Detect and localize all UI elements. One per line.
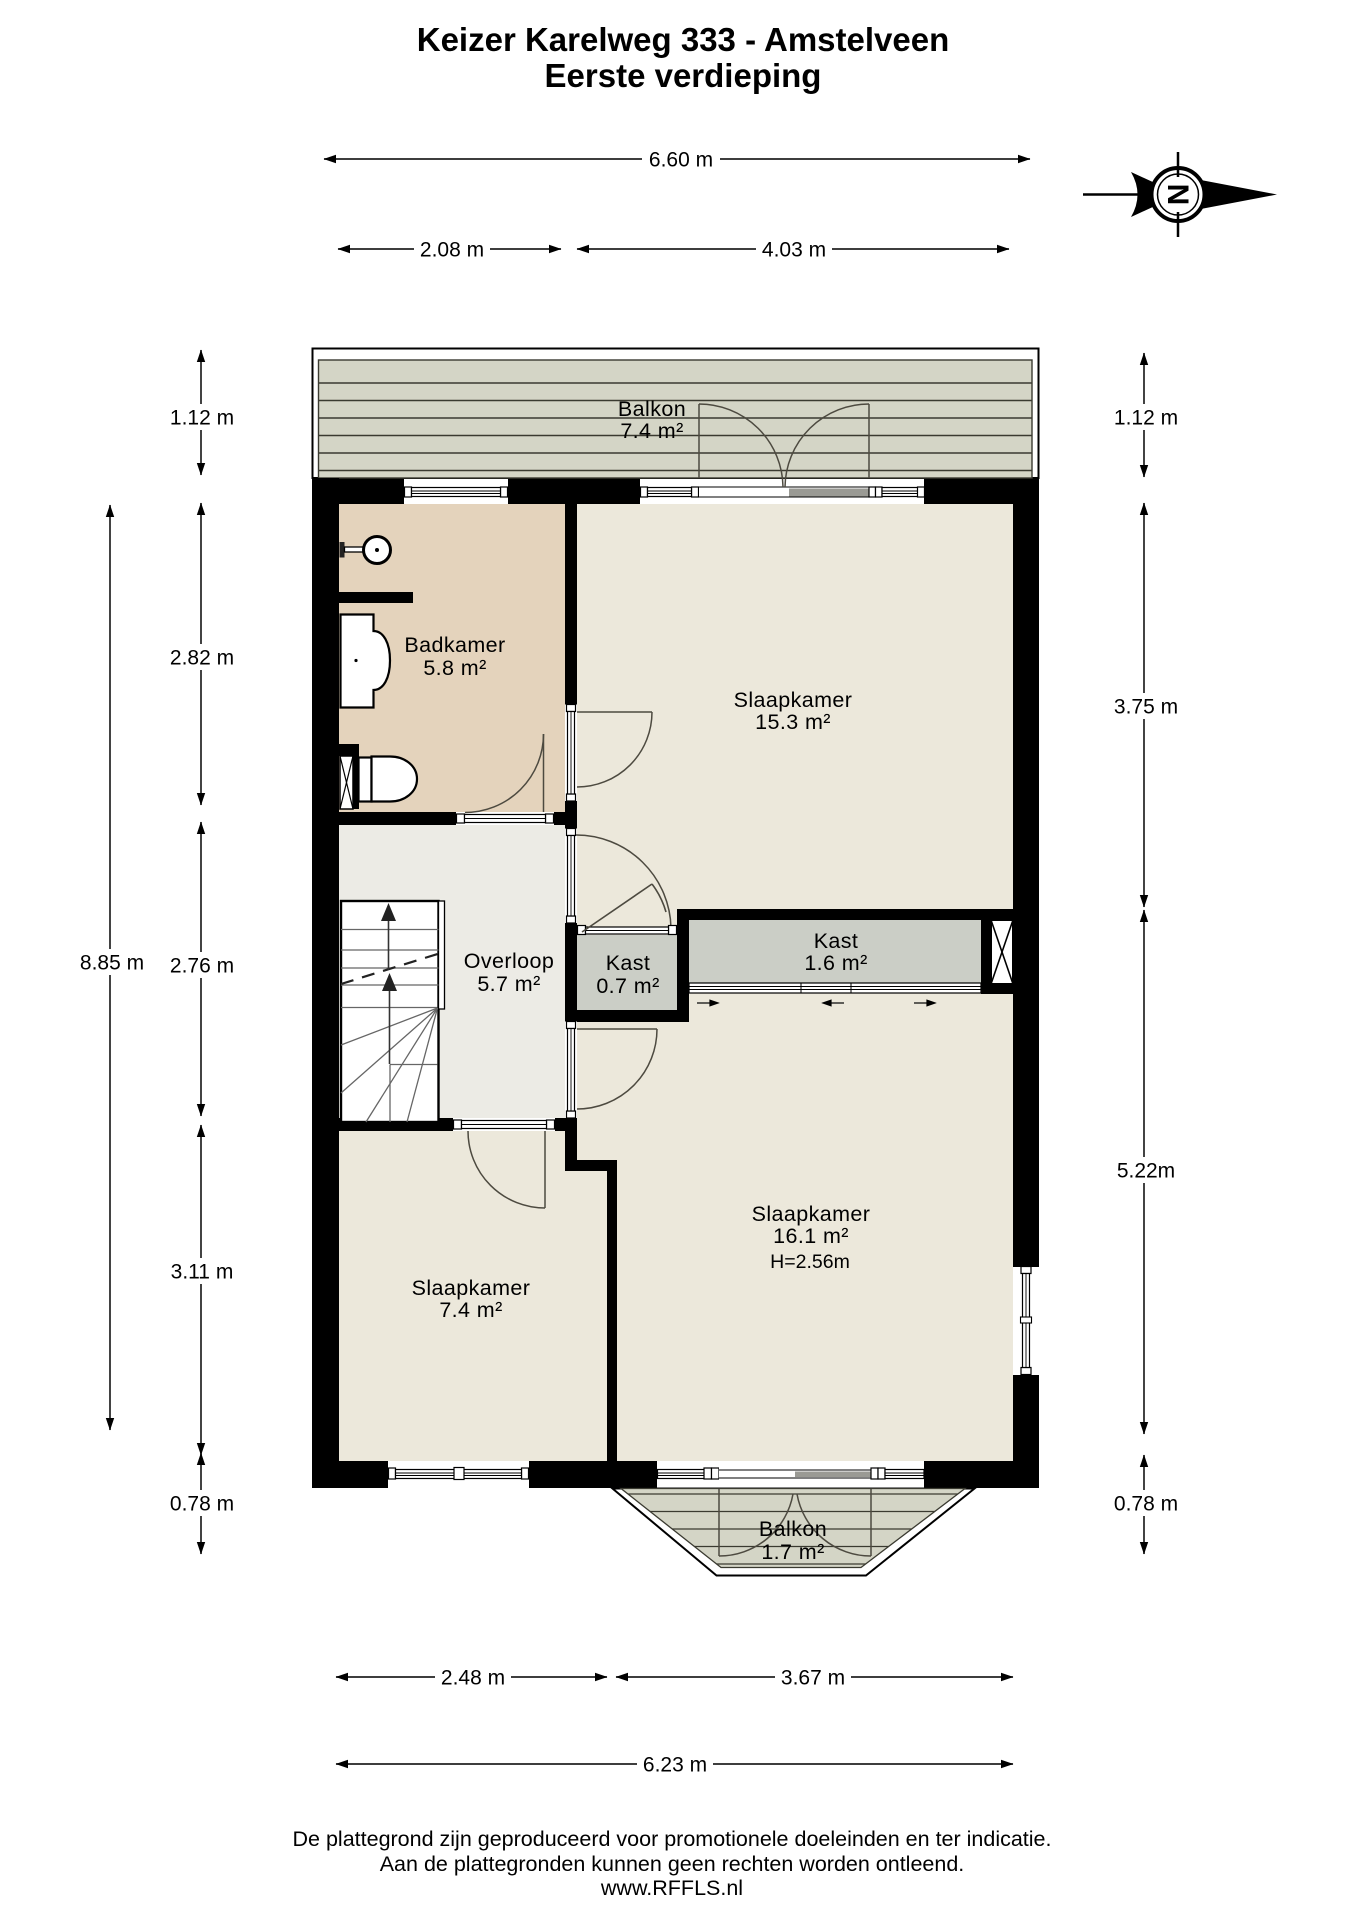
svg-text:0.7 m²: 0.7 m² <box>596 974 659 998</box>
svg-text:Overloop: Overloop <box>464 949 554 973</box>
svg-text:3.75 m: 3.75 m <box>1114 696 1178 719</box>
svg-text:1.6 m²: 1.6 m² <box>804 951 867 975</box>
svg-text:5.22m: 5.22m <box>1117 1160 1175 1183</box>
svg-text:3.67 m: 3.67 m <box>781 1667 845 1690</box>
svg-text:Balkon: Balkon <box>759 1517 827 1541</box>
svg-text:1.12 m: 1.12 m <box>1114 407 1178 430</box>
svg-text:N: N <box>1161 184 1194 206</box>
svg-text:Badkamer: Badkamer <box>404 633 505 657</box>
svg-text:2.76 m: 2.76 m <box>170 955 234 978</box>
svg-text:Kast: Kast <box>814 929 859 953</box>
svg-text:15.3 m²: 15.3 m² <box>755 710 831 734</box>
svg-text:6.23 m: 6.23 m <box>643 1754 707 1777</box>
svg-text:2.48 m: 2.48 m <box>441 1667 505 1690</box>
svg-text:6.60 m: 6.60 m <box>649 149 713 172</box>
svg-text:7.4 m²: 7.4 m² <box>439 1298 502 1322</box>
svg-text:2.82 m: 2.82 m <box>170 647 234 670</box>
svg-text:H=2.56m: H=2.56m <box>770 1251 850 1273</box>
svg-text:Aan de plattegronden kunnen ge: Aan de plattegronden kunnen geen rechten… <box>380 1852 965 1876</box>
svg-text:5.7 m²: 5.7 m² <box>477 972 540 996</box>
svg-text:3.11 m: 3.11 m <box>171 1261 234 1284</box>
svg-text:Eerste verdieping: Eerste verdieping <box>545 57 822 94</box>
svg-text:16.1 m²: 16.1 m² <box>773 1224 849 1248</box>
svg-text:5.8 m²: 5.8 m² <box>423 656 486 680</box>
svg-text:Slaapkamer: Slaapkamer <box>734 688 853 712</box>
svg-text:1.7 m²: 1.7 m² <box>761 1540 824 1564</box>
svg-text:4.03 m: 4.03 m <box>762 239 826 262</box>
svg-text:Balkon: Balkon <box>618 397 686 421</box>
svg-text:Slaapkamer: Slaapkamer <box>752 1202 871 1226</box>
svg-text:Kast: Kast <box>606 951 651 975</box>
svg-text:De plattegrond zijn geproducee: De plattegrond zijn geproduceerd voor pr… <box>293 1827 1052 1851</box>
svg-text:www.RFFLS.nl: www.RFFLS.nl <box>600 1876 743 1900</box>
svg-text:0.78 m: 0.78 m <box>1114 1493 1178 1516</box>
svg-text:0.78 m: 0.78 m <box>170 1493 234 1516</box>
svg-text:Slaapkamer: Slaapkamer <box>412 1276 531 1300</box>
svg-text:2.08 m: 2.08 m <box>420 239 484 262</box>
svg-text:1.12 m: 1.12 m <box>170 407 234 430</box>
svg-text:8.85 m: 8.85 m <box>80 952 144 975</box>
svg-text:Keizer Karelweg 333 - Amstelve: Keizer Karelweg 333 - Amstelveen <box>417 21 950 58</box>
svg-text:7.4 m²: 7.4 m² <box>620 419 683 443</box>
